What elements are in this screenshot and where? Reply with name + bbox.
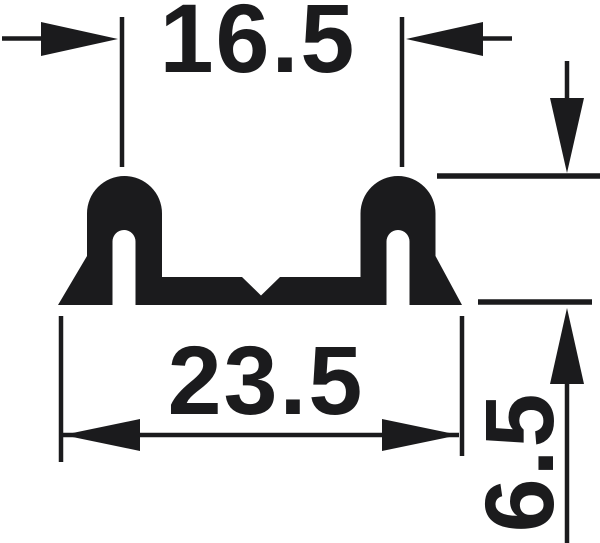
profile-cross-section bbox=[58, 176, 462, 305]
dim-base-width: 23.5 bbox=[61, 316, 462, 462]
arrowhead-right-icon bbox=[382, 419, 459, 451]
dimension-drawing-svg: 16.5 23.5 6.5 bbox=[0, 0, 600, 543]
arrowhead-right-icon bbox=[41, 22, 118, 56]
arrowhead-left-icon bbox=[406, 22, 483, 56]
dim-top-slot-spacing-value: 16.5 bbox=[160, 0, 357, 93]
arrowhead-left-icon bbox=[63, 419, 140, 451]
dim-profile-height: 6.5 bbox=[437, 61, 600, 543]
technical-drawing-canvas: 16.5 23.5 6.5 bbox=[0, 0, 600, 543]
dim-top-slot-spacing: 16.5 bbox=[2, 0, 512, 167]
arrowhead-up-icon bbox=[550, 308, 584, 384]
dim-profile-height-value: 6.5 bbox=[465, 392, 574, 533]
profile-outline-shape bbox=[58, 176, 462, 305]
dim-base-width-value: 23.5 bbox=[168, 326, 365, 435]
arrowhead-down-icon bbox=[550, 98, 584, 173]
